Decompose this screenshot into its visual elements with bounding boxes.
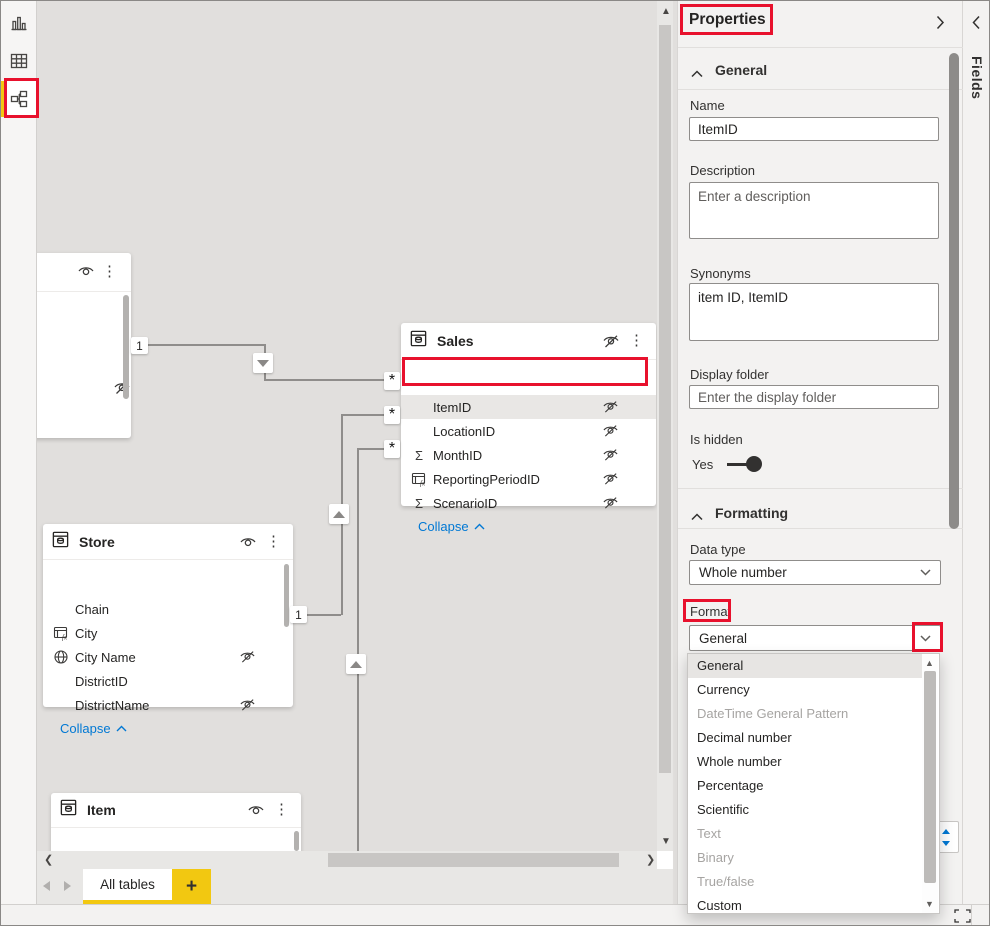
eye-hidden-icon[interactable] [602, 447, 619, 467]
model-view-icon [9, 89, 29, 109]
eye-icon[interactable] [239, 534, 257, 555]
eye-icon[interactable] [247, 802, 265, 823]
cardinality-one-marker[interactable]: 1 [290, 606, 307, 623]
table-icon [59, 798, 78, 822]
format-option-whole-number[interactable]: Whole number [688, 750, 922, 774]
eye-icon[interactable] [77, 263, 95, 284]
format-option-custom[interactable]: Custom [688, 894, 922, 914]
fields-pane-collapsed: Fields [963, 1, 990, 904]
eye-hidden-icon[interactable] [602, 495, 619, 515]
format-option-binary: Binary [688, 846, 922, 870]
format-label: Format [690, 604, 731, 619]
calculated-column-icon: fx [51, 625, 71, 641]
expand-fields-icon[interactable] [972, 15, 981, 35]
arrow-down-icon [257, 360, 269, 367]
relationship-line[interactable] [145, 344, 265, 346]
scroll-down-icon[interactable]: ▼ [661, 837, 671, 847]
relationship-line[interactable] [357, 448, 385, 450]
stepper-down-icon[interactable] [942, 841, 950, 846]
table-icon [409, 329, 428, 353]
table-title: Store [79, 534, 115, 550]
field-row-monthid[interactable]: Σ MonthID [401, 443, 656, 467]
format-option-scientific[interactable]: Scientific [688, 798, 922, 822]
relationship-line[interactable] [341, 414, 385, 416]
more-options-icon[interactable]: ⋮ [629, 333, 644, 348]
field-row-chain[interactable]: Chain [43, 597, 293, 621]
sum-icon: Σ [415, 448, 423, 463]
field-row-locationid[interactable]: LocationID [401, 419, 656, 443]
is-hidden-toggle[interactable] [727, 456, 762, 472]
field-row-itemid[interactable]: ItemID [401, 395, 656, 419]
format-option-truefalse: True/false [688, 870, 922, 894]
eye-hidden-icon[interactable] [602, 471, 619, 491]
relationship-line[interactable] [264, 379, 385, 381]
more-options-icon[interactable]: ⋮ [266, 534, 281, 549]
eye-hidden-icon[interactable] [602, 399, 619, 419]
calculated-column-icon: fx [409, 471, 429, 487]
properties-scrollbar[interactable] [949, 53, 959, 529]
field-row-city[interactable]: fx City [43, 621, 293, 645]
fit-to-screen-icon[interactable] [954, 909, 971, 926]
scrollbar-thumb[interactable] [659, 25, 671, 773]
description-input[interactable] [689, 182, 939, 239]
tab-nav-left-icon[interactable] [43, 881, 50, 891]
collapse-link[interactable]: Collapse [418, 519, 656, 534]
cardinality-many-marker[interactable]: * [384, 440, 400, 458]
format-dropdown-list: General Currency DateTime General Patter… [687, 653, 940, 914]
table-tabs-bar: All tables + [37, 869, 673, 904]
data-type-label: Data type [690, 542, 746, 557]
section-general[interactable]: General [715, 62, 767, 78]
synonyms-input[interactable]: item ID, ItemID [689, 283, 939, 341]
more-options-icon[interactable]: ⋮ [274, 802, 289, 817]
arrow-up-icon [350, 661, 362, 668]
field-row-districtid[interactable]: DistrictID [43, 669, 293, 693]
name-label: Name [690, 98, 725, 113]
data-type-select[interactable]: Whole number [689, 560, 941, 585]
format-option-datetime: DateTime General Pattern [688, 702, 922, 726]
scrollbar-thumb[interactable] [924, 671, 936, 883]
table-card-header[interactable]: Store ⋮ [43, 524, 293, 559]
scroll-up-icon[interactable]: ▲ [925, 659, 934, 668]
dropdown-scrollbar[interactable]: ▲ ▼ [922, 655, 938, 913]
sidebar-item-data-view[interactable] [2, 43, 36, 79]
tab-all-tables[interactable]: All tables [83, 869, 172, 904]
properties-title: Properties [689, 11, 766, 29]
collapse-link[interactable]: Collapse [60, 721, 293, 736]
fields-pane-title[interactable]: Fields [969, 56, 985, 99]
eye-hidden-icon[interactable] [602, 333, 620, 354]
scrollbar-thumb[interactable] [328, 853, 619, 867]
display-folder-input[interactable] [689, 385, 939, 409]
table-card-sales[interactable]: Sales ⋮ ItemID LocationID [401, 323, 656, 506]
add-layout-button[interactable]: + [172, 869, 211, 904]
plus-icon: + [186, 876, 197, 898]
field-row-districtname[interactable]: DistrictName [43, 693, 293, 717]
report-view-icon [9, 13, 29, 33]
relationship-direction-arrow[interactable] [346, 654, 366, 674]
scrollbar-corner [657, 851, 673, 869]
format-option-general[interactable]: General [688, 654, 922, 678]
table-card-item[interactable]: Item ⋮ Buyer [51, 793, 301, 851]
globe-icon [51, 649, 71, 665]
relationship-line[interactable] [357, 448, 359, 851]
sidebar-item-model-view[interactable] [2, 81, 36, 117]
field-row-city-name[interactable]: City Name [43, 645, 293, 669]
stepper-up-icon[interactable] [942, 829, 950, 834]
display-folder-label: Display folder [690, 367, 769, 382]
format-option-currency[interactable]: Currency [688, 678, 922, 702]
cardinality-one-marker[interactable]: 1 [131, 337, 148, 354]
table-icon [51, 530, 70, 554]
card-scrollbar[interactable] [294, 831, 299, 851]
field-row-reportingperiodid[interactable]: fx ReportingPeriodID [401, 467, 656, 491]
table-card-header[interactable]: ⋮ [37, 253, 131, 291]
table-card-store[interactable]: Store ⋮ Chain fx City [43, 524, 293, 707]
format-select[interactable]: General [689, 625, 941, 651]
cardinality-many-marker[interactable]: * [384, 406, 400, 424]
chevron-up-icon [116, 725, 127, 732]
collapse-pane-icon[interactable] [936, 15, 945, 35]
svg-text:fx: fx [62, 634, 68, 642]
model-canvas[interactable]: 1 1 * * * ⋮ Sales [37, 1, 657, 851]
scroll-left-icon[interactable]: ❮ [44, 855, 53, 865]
chevron-up-icon [474, 523, 485, 530]
description-label: Description [690, 163, 755, 178]
relationship-line[interactable] [304, 614, 341, 616]
section-collapse-icon[interactable] [691, 508, 703, 526]
is-hidden-label: Is hidden [690, 432, 743, 447]
name-input[interactable] [689, 117, 939, 141]
card-scrollbar[interactable] [284, 564, 289, 627]
sidebar-item-report-view[interactable] [2, 5, 36, 41]
eye-hidden-icon[interactable] [602, 423, 619, 443]
svg-text:fx: fx [420, 480, 426, 488]
scroll-right-icon[interactable]: ❯ [646, 855, 655, 865]
data-view-icon [9, 51, 29, 71]
canvas-horizontal-scrollbar[interactable]: ❮ ❯ [37, 851, 673, 869]
table-card-header[interactable]: Item ⋮ [51, 793, 301, 827]
format-option-percentage[interactable]: Percentage [688, 774, 922, 798]
scroll-down-icon[interactable]: ▼ [925, 900, 934, 909]
relationship-direction-arrow[interactable] [329, 504, 349, 524]
section-formatting[interactable]: Formatting [715, 505, 788, 521]
card-scrollbar[interactable] [123, 295, 129, 399]
is-hidden-value: Yes [692, 457, 713, 472]
format-option-decimal-number[interactable]: Decimal number [688, 726, 922, 750]
relationship-direction-arrow[interactable] [253, 353, 273, 373]
view-sidebar [1, 1, 37, 904]
cardinality-many-marker[interactable]: * [384, 372, 400, 390]
eye-hidden-icon[interactable] [239, 697, 256, 717]
chevron-down-icon [920, 635, 931, 642]
table-card-header[interactable]: Sales ⋮ [401, 323, 656, 359]
format-option-text: Text [688, 822, 922, 846]
scroll-up-icon[interactable]: ▲ [661, 7, 671, 17]
sum-icon: Σ [415, 496, 423, 511]
powerbi-model-view-window: 1 1 * * * ⋮ Sales [0, 0, 990, 926]
eye-hidden-icon[interactable] [239, 649, 256, 669]
synonyms-label: Synonyms [690, 266, 751, 281]
section-collapse-icon[interactable] [691, 65, 703, 83]
more-options-icon[interactable]: ⋮ [102, 264, 117, 279]
table-title: Sales [437, 333, 474, 349]
table-card-partial[interactable]: ⋮ [37, 253, 131, 438]
arrow-up-icon [333, 511, 345, 518]
chevron-down-icon [920, 569, 931, 576]
field-row-scenarioid[interactable]: Σ ScenarioID [401, 491, 656, 515]
table-title: Item [87, 802, 116, 818]
canvas-vertical-scrollbar[interactable]: ▲ ▼ [657, 1, 673, 851]
tab-nav-right-icon[interactable] [64, 881, 71, 891]
